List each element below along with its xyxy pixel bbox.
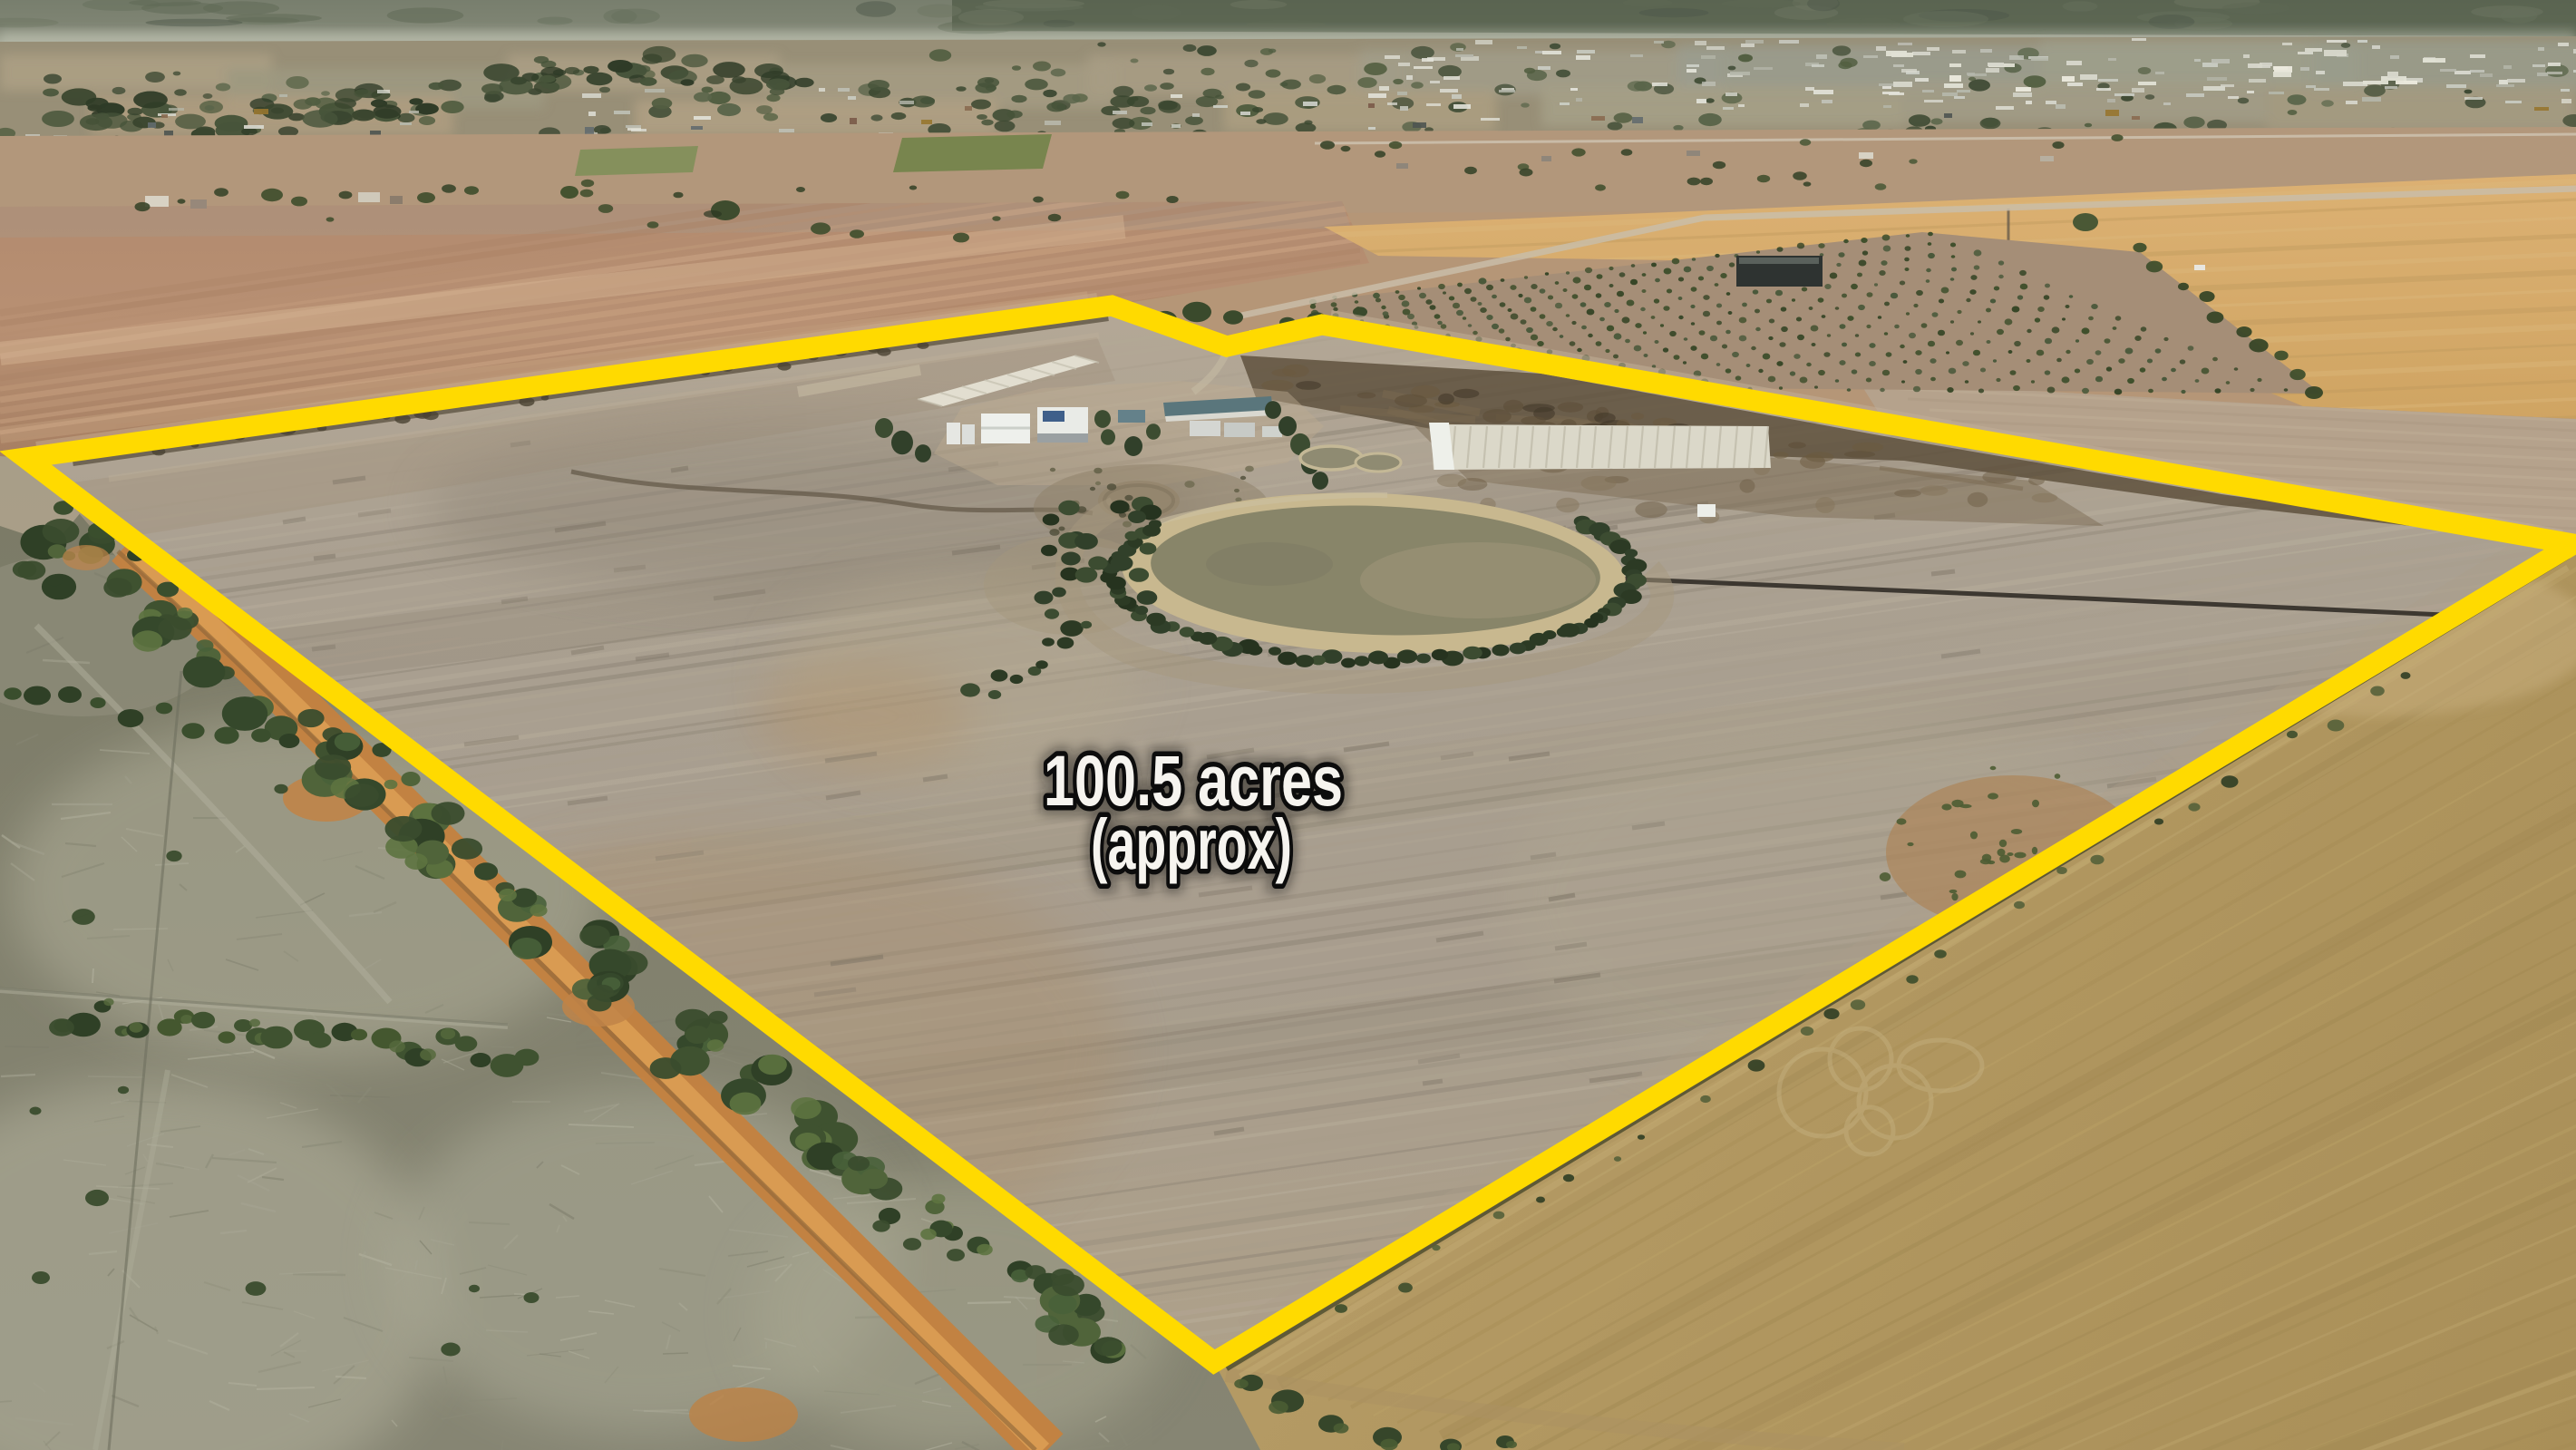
svg-text:(approx): (approx) [1091, 803, 1292, 884]
